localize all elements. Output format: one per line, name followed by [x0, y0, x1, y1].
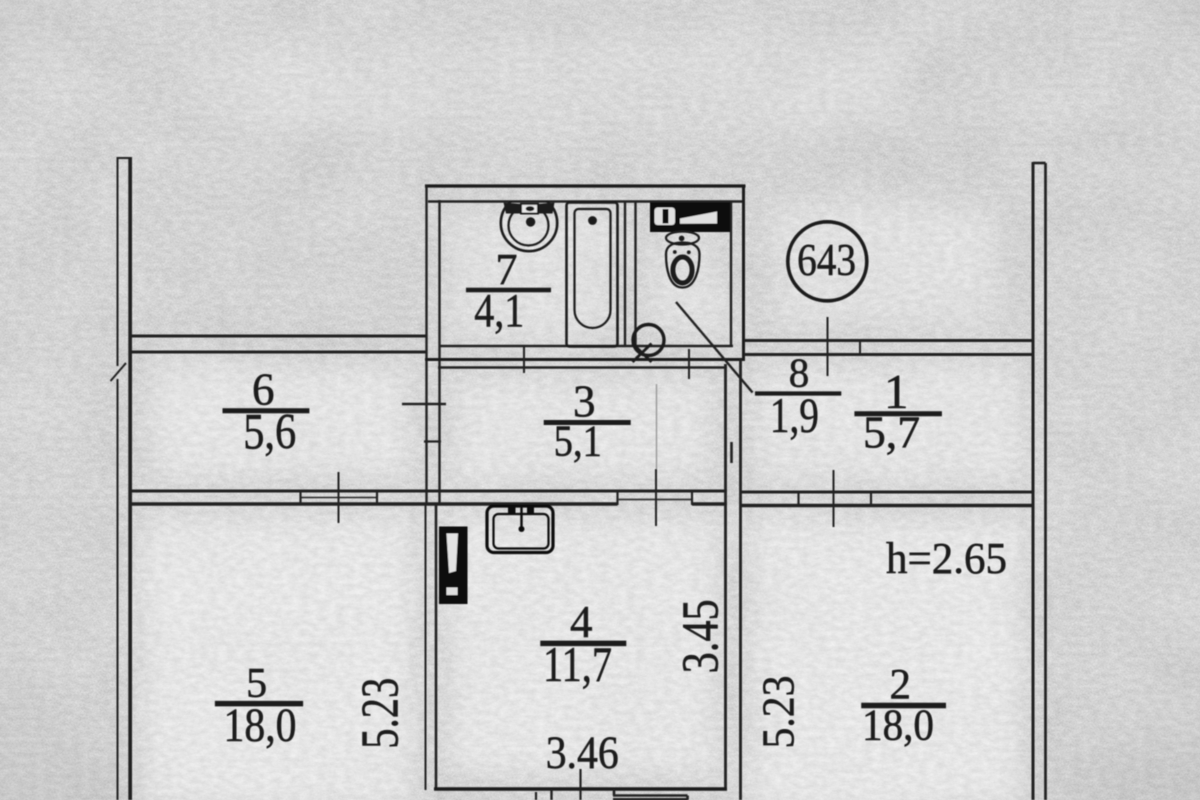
svg-text:3.46: 3.46	[546, 727, 619, 779]
svg-text:5.23: 5.23	[352, 678, 410, 749]
svg-text:5.23: 5.23	[753, 676, 804, 749]
svg-text:h=2.65: h=2.65	[886, 534, 1007, 583]
svg-text:643: 643	[797, 234, 856, 285]
svg-text:18,0: 18,0	[224, 699, 297, 752]
svg-text:18,0: 18,0	[862, 701, 934, 750]
svg-text:4,1: 4,1	[474, 285, 524, 338]
svg-text:11,7: 11,7	[543, 636, 612, 692]
svg-text:5,7: 5,7	[863, 408, 920, 458]
svg-text:5,1: 5,1	[554, 417, 602, 466]
svg-text:5,6: 5,6	[243, 405, 296, 461]
svg-text:3.45: 3.45	[673, 599, 730, 673]
svg-text:1,9: 1,9	[770, 387, 819, 443]
